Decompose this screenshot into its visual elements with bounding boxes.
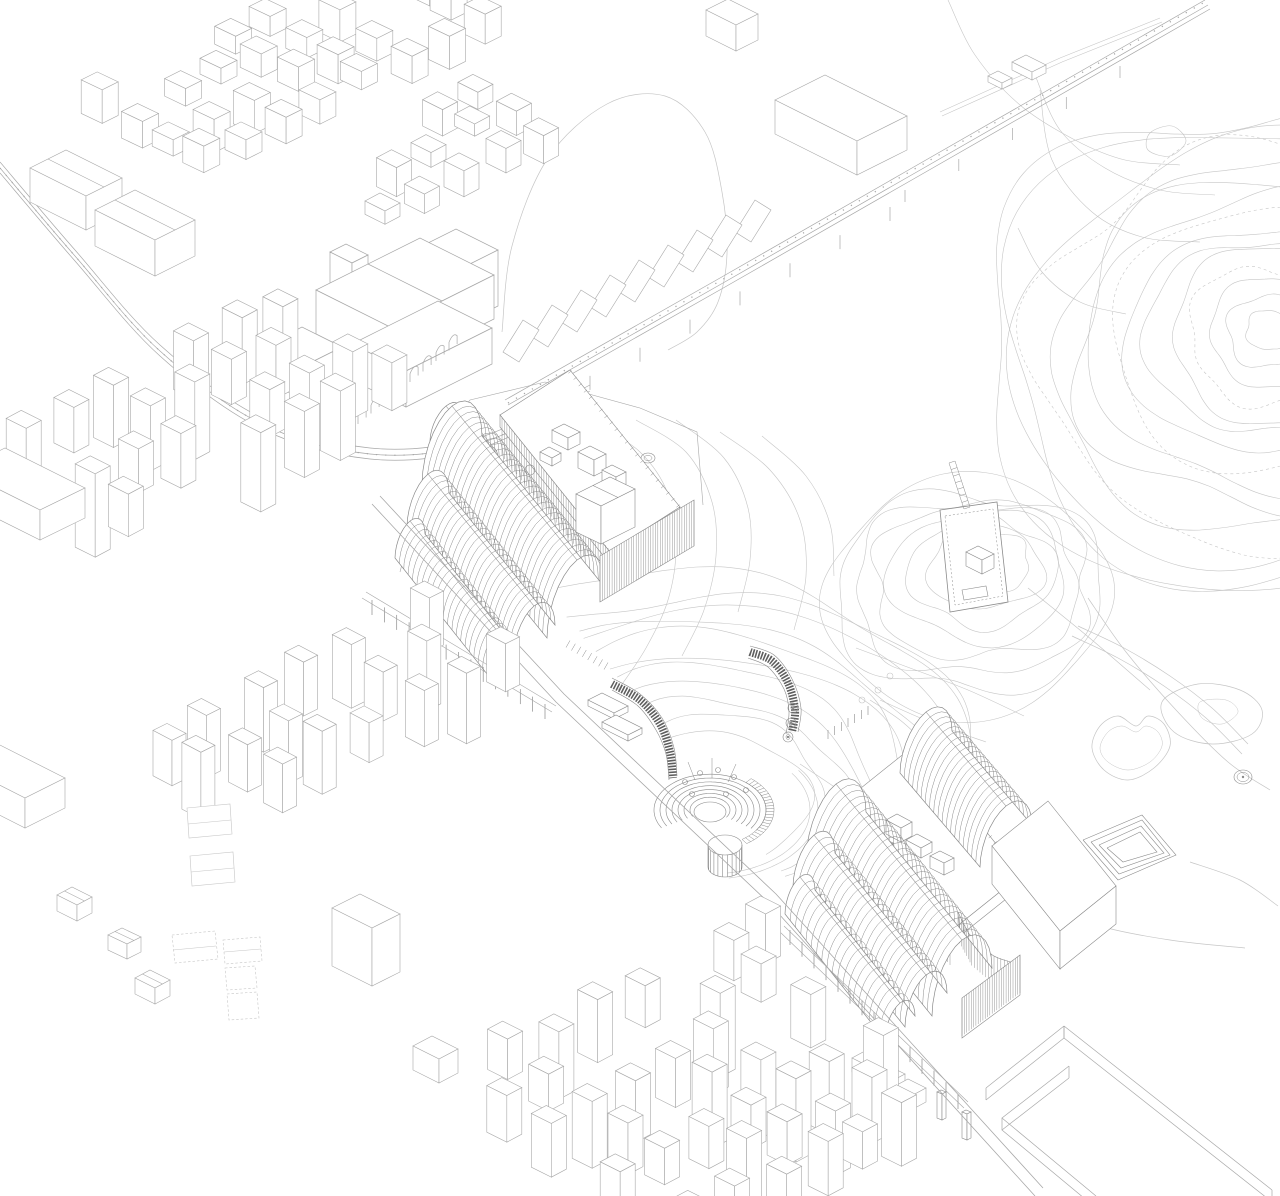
parking-lots bbox=[172, 804, 262, 1020]
pond-east bbox=[1161, 683, 1263, 744]
west-slabs bbox=[0, 448, 85, 828]
garden-pergola bbox=[828, 706, 868, 739]
pond-west bbox=[1092, 716, 1170, 780]
pond-east-island bbox=[1198, 699, 1238, 724]
amphitheatre-stairs bbox=[688, 758, 736, 782]
temple-stair-rails bbox=[949, 461, 970, 509]
axonometric-site-drawing bbox=[0, 0, 1280, 1196]
hill-north-contours bbox=[996, 108, 1280, 592]
north-housing bbox=[365, 74, 559, 224]
railway-viaduct bbox=[505, 0, 1210, 409]
boundary-walls bbox=[986, 1026, 1272, 1196]
hall-b-east-block bbox=[992, 801, 1116, 969]
rotunda-colonnade bbox=[708, 835, 742, 877]
platform-stalls bbox=[503, 200, 771, 362]
north-blocks bbox=[706, 0, 907, 175]
ridge-path bbox=[940, 18, 1162, 116]
south-cottages bbox=[57, 887, 458, 1083]
viaduct-piers-north bbox=[905, 66, 1120, 202]
site-drawing-svg bbox=[0, 0, 1280, 1196]
parking-lot-lines bbox=[173, 820, 261, 952]
temple-stair-steps bbox=[949, 461, 970, 509]
northeast-terrain-lines bbox=[948, 0, 1215, 314]
railway-sleepers bbox=[508, 3, 1203, 403]
amphitheatre-pit bbox=[694, 802, 726, 822]
hall-b-gateposts bbox=[937, 1090, 971, 1140]
northwest-halls bbox=[30, 150, 195, 276]
footbridges bbox=[988, 55, 1046, 89]
pond-west-inner bbox=[1100, 726, 1162, 770]
hall-a-entry-steps bbox=[566, 641, 608, 670]
north-pond bbox=[1146, 126, 1186, 157]
